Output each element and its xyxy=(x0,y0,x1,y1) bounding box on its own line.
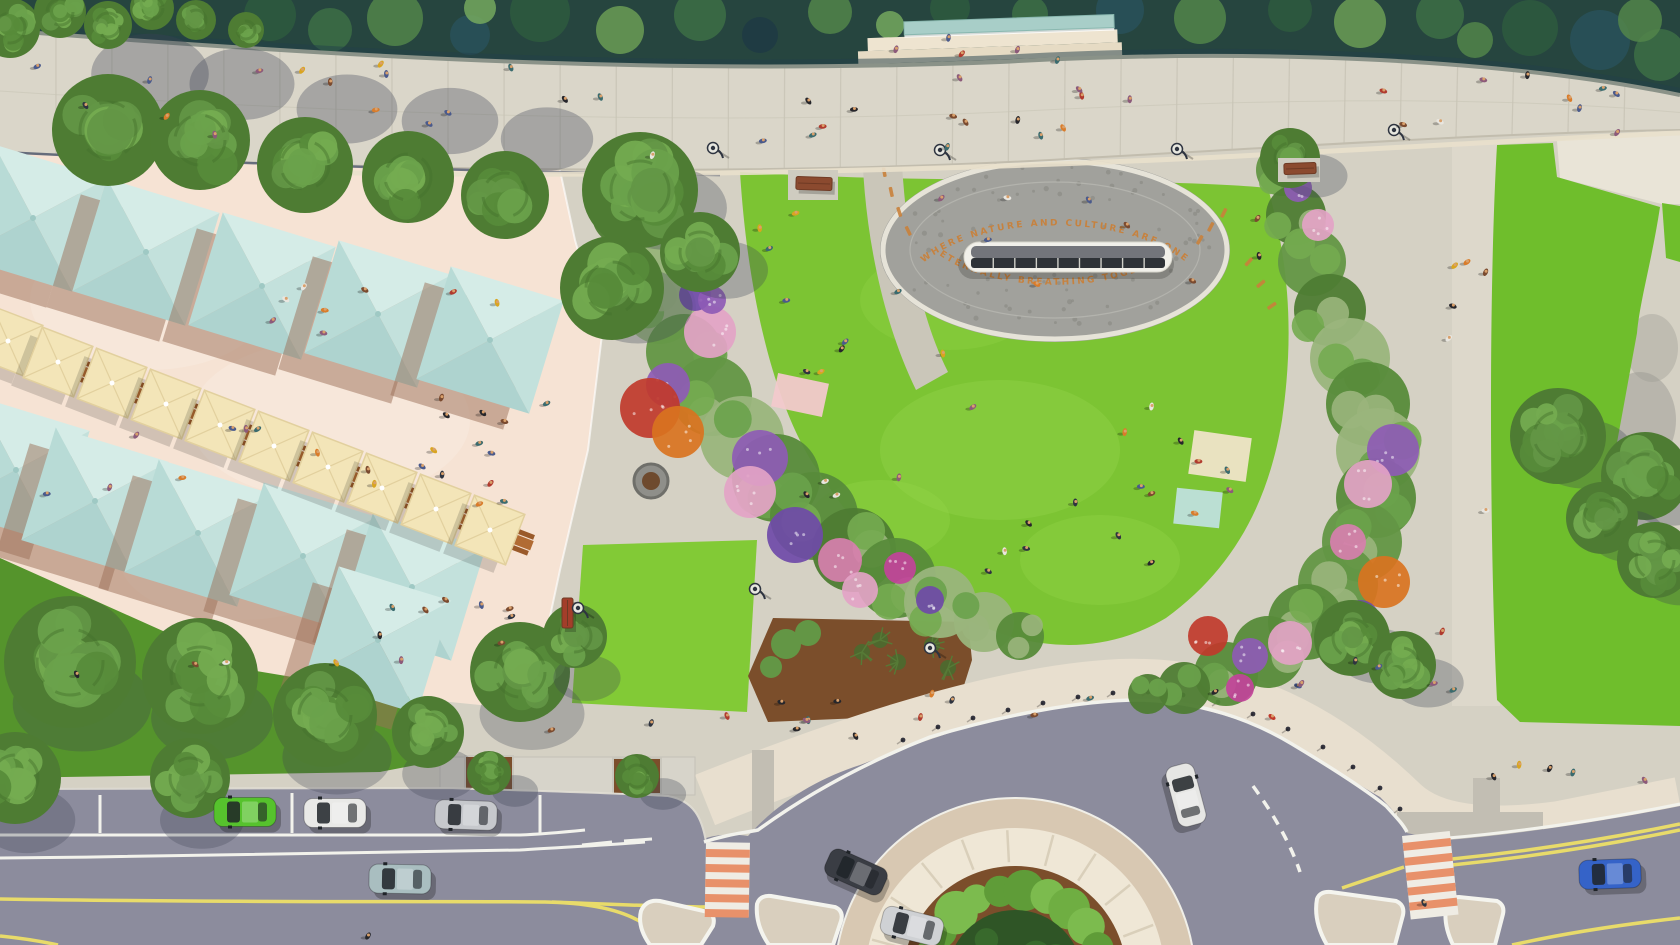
tree-foliage xyxy=(1594,507,1616,529)
flower-dot xyxy=(667,445,670,448)
stone-texture-dot xyxy=(938,232,943,237)
car xyxy=(1578,856,1646,895)
pavilion-mullion xyxy=(1057,258,1058,268)
person-head xyxy=(245,426,248,429)
person-head xyxy=(822,124,825,127)
flower-dot xyxy=(689,439,692,442)
flower-cluster xyxy=(1268,621,1312,665)
stone-texture-dot xyxy=(1108,321,1112,325)
bank-foliage xyxy=(1618,0,1662,42)
white-dash xyxy=(624,839,652,841)
tree-foliage xyxy=(1662,550,1680,569)
person-head xyxy=(379,633,382,636)
person-head xyxy=(1150,560,1153,563)
person-head xyxy=(1056,58,1059,61)
tree-foliage xyxy=(1629,556,1652,579)
stone-texture-dot xyxy=(1070,166,1073,169)
person-head xyxy=(795,211,798,214)
bank-foliage xyxy=(1502,0,1558,56)
flower-dot xyxy=(724,328,727,331)
person-head xyxy=(564,97,567,100)
stone-texture-dot xyxy=(1054,321,1057,324)
stone-texture-dot xyxy=(1007,307,1011,311)
flower-dot xyxy=(795,532,798,535)
stone-texture-dot xyxy=(941,220,944,223)
tree-foliage xyxy=(1392,636,1414,658)
flower-dot xyxy=(1194,641,1197,644)
person-head xyxy=(367,467,370,470)
person-head xyxy=(1025,546,1028,549)
person-head xyxy=(1569,96,1572,99)
flower-cluster xyxy=(767,507,823,563)
car-roof xyxy=(397,868,413,889)
tree xyxy=(228,12,264,48)
person-head xyxy=(1382,88,1385,91)
person-head xyxy=(895,47,898,50)
tree-foliage xyxy=(96,23,107,34)
tree-foliage xyxy=(1654,568,1676,590)
flower-dot xyxy=(850,571,853,574)
flower-dot xyxy=(1375,575,1378,578)
stone-texture-dot xyxy=(1195,222,1198,225)
flower-cluster xyxy=(652,406,704,458)
flower-dot xyxy=(903,561,906,564)
bank-foliage xyxy=(596,6,644,54)
person-head xyxy=(1124,430,1127,433)
car xyxy=(304,797,371,834)
car-rear-window xyxy=(479,806,489,825)
bed-shrub xyxy=(795,620,821,646)
person-head xyxy=(855,734,858,737)
person-head xyxy=(496,300,499,303)
tree-foliage xyxy=(685,237,714,266)
stone-texture-dot xyxy=(1004,304,1007,307)
bench xyxy=(1284,162,1320,178)
person-head xyxy=(364,287,367,290)
flower-dot xyxy=(1258,646,1261,649)
person-head xyxy=(1197,459,1200,462)
person-head xyxy=(194,662,197,665)
person-head xyxy=(166,114,169,117)
stone-texture-dot xyxy=(913,288,916,291)
person-head xyxy=(424,607,427,610)
car-rear-window xyxy=(258,803,267,822)
person-head xyxy=(1452,687,1455,690)
stone-texture-dot xyxy=(1062,307,1066,311)
stone-texture-dot xyxy=(1076,181,1081,186)
flower-dot xyxy=(930,604,933,607)
person-head xyxy=(329,79,332,82)
stone-texture-dot xyxy=(1005,289,1008,292)
bank-foliage xyxy=(1457,22,1493,58)
person-head xyxy=(806,492,809,495)
person-head xyxy=(452,289,455,292)
person-head xyxy=(478,501,481,504)
left-border-shrub-blob xyxy=(714,400,752,438)
person-head xyxy=(1448,336,1451,339)
stone-texture-dot xyxy=(1140,181,1143,184)
tree xyxy=(84,1,132,49)
pavilion-mullion xyxy=(1122,258,1123,268)
person-head xyxy=(1466,260,1469,263)
stone-texture-dot xyxy=(991,191,994,194)
person-head xyxy=(820,369,823,372)
stone-texture-dot xyxy=(1108,198,1111,201)
ring-joint xyxy=(1007,830,1009,862)
person-head xyxy=(322,331,325,334)
pavilion-mullion xyxy=(993,258,994,268)
person-head xyxy=(1040,133,1043,136)
tree xyxy=(392,696,464,768)
person-head xyxy=(258,68,261,71)
pavilion-mullion xyxy=(1014,258,1015,268)
car xyxy=(214,796,281,833)
person-head xyxy=(897,289,900,292)
person-head xyxy=(1033,713,1036,716)
stone-texture-dot xyxy=(1106,305,1109,308)
car-roof xyxy=(1607,863,1624,885)
tree-foliage xyxy=(617,252,650,285)
person-head xyxy=(272,318,275,321)
flower-dot xyxy=(769,448,772,451)
flower-dot xyxy=(725,324,728,327)
person-head xyxy=(952,114,955,117)
person-head xyxy=(1126,223,1129,226)
person-head xyxy=(400,658,403,661)
person-head xyxy=(503,419,506,422)
flower-dot xyxy=(1239,659,1242,662)
person-head xyxy=(836,699,839,702)
person-head xyxy=(972,405,975,408)
person-head xyxy=(1615,91,1618,94)
flower-dot xyxy=(750,502,753,505)
person-head xyxy=(919,715,922,718)
car-rear-window xyxy=(348,804,357,823)
person-head xyxy=(1150,491,1153,494)
aerial-site-plan: WHERE NATURE AND CULTURE ARE ONEETERNALL… xyxy=(0,0,1680,945)
person-head xyxy=(257,427,260,430)
person-head xyxy=(651,153,654,156)
person-head xyxy=(546,401,549,404)
tree xyxy=(142,618,258,734)
flower-dot xyxy=(928,605,931,608)
flower-dot xyxy=(859,584,862,587)
flower-dot xyxy=(851,598,854,601)
person-head xyxy=(433,448,436,451)
bench xyxy=(796,176,836,194)
stone-texture-dot xyxy=(1157,228,1161,232)
person-head xyxy=(1180,439,1183,442)
stone-texture-dot xyxy=(984,175,988,179)
person-head xyxy=(1482,77,1485,80)
tree-foliage xyxy=(390,189,421,220)
person-head xyxy=(835,493,838,496)
flower-dot xyxy=(834,565,837,568)
flower-dot xyxy=(1363,497,1366,500)
car-windshield xyxy=(1592,864,1606,885)
flower-dot xyxy=(746,448,749,451)
flower-dot xyxy=(685,431,688,434)
person-head xyxy=(303,284,306,287)
person-head xyxy=(1036,282,1039,285)
bank-foliage xyxy=(742,17,778,53)
person-head xyxy=(805,718,808,721)
tree-foliage xyxy=(335,686,372,723)
flower-dot xyxy=(1281,650,1284,653)
crosswalk-stripe xyxy=(705,879,749,888)
crosswalk-stripe xyxy=(705,864,749,873)
stone-texture-dot xyxy=(1207,245,1211,249)
flower-dot xyxy=(837,554,840,557)
car-mirror xyxy=(318,827,322,830)
stone-texture-dot xyxy=(1044,186,1049,191)
stone-texture-dot xyxy=(1016,193,1019,196)
person-head xyxy=(824,479,827,482)
stone-texture-dot xyxy=(1183,241,1188,246)
flower-cluster xyxy=(884,552,916,584)
stone-texture-dot xyxy=(1188,208,1192,212)
flower-dot xyxy=(841,556,844,559)
flower-dot xyxy=(1339,550,1342,553)
flower-dot xyxy=(737,489,740,492)
person-head xyxy=(76,672,79,675)
stone-texture-dot xyxy=(1162,193,1165,196)
person-head xyxy=(987,237,990,240)
flower-dot xyxy=(1397,584,1400,587)
person-head xyxy=(1354,658,1357,661)
person-head xyxy=(1229,488,1232,491)
person-head xyxy=(428,121,431,124)
person-head xyxy=(301,68,304,71)
car-mirror xyxy=(448,828,452,831)
flower-dot xyxy=(712,344,715,347)
stone-texture-dot xyxy=(915,241,918,244)
pavilion-mullion xyxy=(1036,258,1037,268)
flower-dot xyxy=(661,405,664,408)
flower-dot xyxy=(1208,641,1211,644)
stone-texture-dot xyxy=(1065,288,1068,291)
tree xyxy=(273,663,377,767)
person-head xyxy=(1300,681,1303,684)
person-head xyxy=(231,426,234,429)
stone-texture-dot xyxy=(1067,299,1072,304)
person-head xyxy=(1117,533,1120,536)
car-mirror xyxy=(383,892,387,895)
flower-dot xyxy=(790,542,793,545)
tree xyxy=(560,236,664,340)
flower-dot xyxy=(688,425,691,428)
right-border-shrub-blob xyxy=(1178,664,1201,687)
person-head xyxy=(214,132,217,135)
person-head xyxy=(1089,696,1092,699)
person-head xyxy=(1439,119,1442,122)
person-head xyxy=(373,481,376,484)
person-head xyxy=(987,569,990,572)
car-windshield xyxy=(317,803,330,824)
car-mirror xyxy=(383,862,387,865)
tree xyxy=(461,151,549,239)
flower-dot xyxy=(1384,579,1387,582)
stone-texture-dot xyxy=(946,284,949,287)
person-head xyxy=(46,491,49,494)
flower-dot xyxy=(894,560,897,563)
flower-dot xyxy=(1357,469,1360,472)
flower-dot xyxy=(736,485,739,488)
person-head xyxy=(335,660,338,663)
person-head xyxy=(1006,195,1009,198)
left-border-shrub-blob xyxy=(952,592,979,619)
car-windshield xyxy=(382,868,395,889)
tree-foliage xyxy=(563,644,585,666)
flower-dot xyxy=(1368,498,1371,501)
person-head xyxy=(1526,73,1529,76)
pavilion-mullion xyxy=(1079,258,1080,268)
right-border-shrub-blob xyxy=(1131,676,1149,694)
person-head xyxy=(149,78,152,81)
person-head xyxy=(1518,762,1521,765)
person-head xyxy=(1452,304,1455,307)
right-border-shrub-blob xyxy=(1149,679,1167,697)
person-head xyxy=(1423,901,1426,904)
person-head xyxy=(482,411,485,414)
fountain-center xyxy=(642,472,660,490)
park-rendering-canvas: WHERE NATURE AND CULTURE ARE ONEETERNALL… xyxy=(0,0,1680,945)
flower-cluster xyxy=(1302,209,1334,241)
car-windshield xyxy=(227,802,240,823)
blanket xyxy=(1188,430,1252,482)
person-head xyxy=(480,603,483,606)
person-head xyxy=(509,606,512,609)
tree xyxy=(660,212,740,292)
person-head xyxy=(1214,689,1217,692)
flower-cluster xyxy=(724,466,776,518)
flower-dot xyxy=(1391,456,1394,459)
flower-cluster xyxy=(1188,616,1228,656)
flower-dot xyxy=(1237,679,1240,682)
tree-foliage xyxy=(174,752,199,777)
flower-dot xyxy=(707,298,710,301)
blanket xyxy=(1173,488,1223,529)
lawn-light-patch xyxy=(1020,515,1180,605)
flower-dot xyxy=(1243,653,1246,656)
person-head xyxy=(440,395,443,398)
car xyxy=(434,797,502,836)
person-head xyxy=(391,605,394,608)
person-head xyxy=(942,351,945,354)
person-head xyxy=(489,481,492,484)
bank-foliage xyxy=(876,11,904,39)
stone-texture-dot xyxy=(972,188,976,192)
person-head xyxy=(853,107,856,110)
stone-texture-dot xyxy=(956,187,960,191)
stone-texture-dot xyxy=(1148,305,1152,309)
flower-cluster xyxy=(842,572,878,608)
person-head xyxy=(1602,86,1605,89)
person-head xyxy=(109,485,112,488)
person-head xyxy=(599,94,602,97)
car-mirror xyxy=(449,798,453,801)
flower-dot xyxy=(1398,573,1401,576)
person-head xyxy=(768,246,771,249)
person-head xyxy=(812,133,815,136)
crosswalk xyxy=(1402,831,1459,920)
stone-texture-dot xyxy=(976,291,979,294)
tree-foliage xyxy=(176,775,205,804)
car-mirror xyxy=(1592,858,1596,861)
person-head xyxy=(503,499,506,502)
flower-dot xyxy=(713,301,716,304)
car-mirror xyxy=(1593,888,1597,891)
flower-dot xyxy=(708,303,711,306)
lamp-core xyxy=(711,146,715,150)
flower-dot xyxy=(1317,232,1320,235)
tree xyxy=(176,0,216,40)
person-head xyxy=(946,144,949,147)
stone-texture-dot xyxy=(922,231,927,236)
car-roof xyxy=(332,803,348,824)
pavilion xyxy=(958,242,1174,279)
person-head xyxy=(1433,681,1436,684)
stone-texture-dot xyxy=(1106,170,1111,175)
person-head xyxy=(807,99,810,102)
flower-cluster xyxy=(1232,638,1268,674)
bench xyxy=(562,598,576,632)
tree xyxy=(4,596,136,728)
person-head xyxy=(841,346,844,349)
right-border-shrub-blob xyxy=(1310,244,1341,275)
car-roof xyxy=(242,802,258,823)
flower-cluster xyxy=(1344,460,1392,508)
person-head xyxy=(931,691,934,694)
person-head xyxy=(1017,117,1020,120)
lamp-core xyxy=(1175,147,1179,151)
person-head xyxy=(385,71,388,74)
person-head xyxy=(844,339,847,342)
stone-texture-dot xyxy=(973,316,978,321)
person-head xyxy=(1226,468,1229,471)
crosswalk-stripe xyxy=(705,894,749,903)
person-head xyxy=(1004,549,1007,552)
flower-dot xyxy=(753,492,756,495)
lamp-core xyxy=(576,606,580,610)
flower-dot xyxy=(1326,227,1329,230)
person-head xyxy=(324,308,327,311)
stone-texture-dot xyxy=(1119,172,1123,176)
person-head xyxy=(550,728,553,731)
flower-cluster xyxy=(1330,524,1366,560)
traffic-island xyxy=(1316,892,1403,945)
stone-texture-dot xyxy=(1028,310,1032,314)
stone-texture-dot xyxy=(1057,192,1062,197)
left-border-shrub-blob xyxy=(1021,615,1043,637)
person-head xyxy=(759,226,762,229)
person-head xyxy=(510,614,513,617)
pavilion-glass xyxy=(971,258,1165,268)
person-head xyxy=(1402,122,1405,125)
picnic-blanket xyxy=(1188,430,1252,482)
tree-foliage xyxy=(1533,439,1561,467)
person-head xyxy=(940,196,943,199)
flower-dot xyxy=(1234,693,1237,696)
flower-dot xyxy=(1318,217,1321,220)
car-roof xyxy=(463,804,480,826)
flower-dot xyxy=(633,412,636,415)
person-head xyxy=(135,433,138,436)
flower-dot xyxy=(650,408,653,411)
lamp-core xyxy=(928,646,932,650)
person-head xyxy=(441,472,444,475)
person-head xyxy=(1078,87,1081,90)
